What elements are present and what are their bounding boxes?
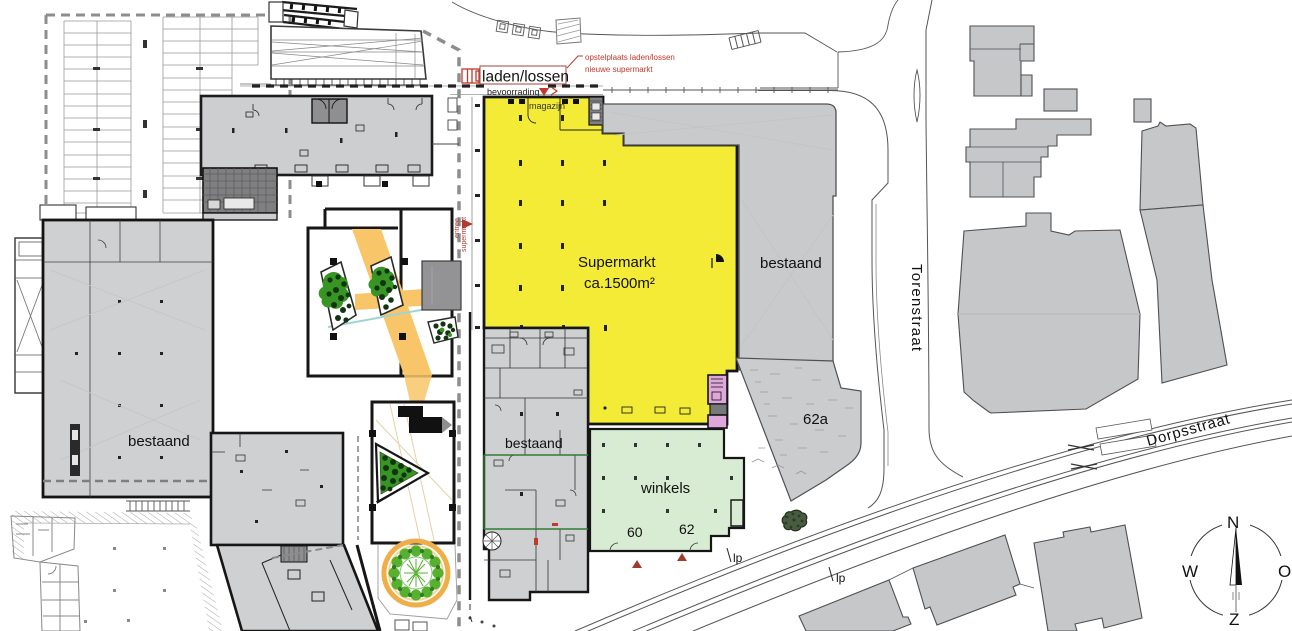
svg-text:winkels: winkels bbox=[640, 480, 690, 497]
svg-text:entree: entree bbox=[454, 218, 461, 238]
svg-text:Torenstraat: Torenstraat bbox=[908, 264, 925, 352]
svg-text:ca.1500m²: ca.1500m² bbox=[584, 275, 655, 292]
svg-text:opstelplaats laden/lossen: opstelplaats laden/lossen bbox=[585, 53, 675, 62]
svg-text:N: N bbox=[1227, 513, 1239, 532]
svg-text:W: W bbox=[1182, 562, 1198, 581]
svg-text:Supermarkt: Supermarkt bbox=[578, 254, 656, 271]
svg-text:bestaand: bestaand bbox=[128, 433, 190, 450]
svg-text:60: 60 bbox=[627, 524, 643, 540]
svg-text:magazijn: magazijn bbox=[529, 101, 565, 111]
svg-text:laden/lossen: laden/lossen bbox=[482, 69, 569, 86]
svg-text:O: O bbox=[1278, 562, 1291, 581]
svg-text:lp: lp bbox=[733, 551, 743, 565]
svg-text:bevoorrading: bevoorrading bbox=[487, 87, 540, 97]
svg-text:bestaand: bestaand bbox=[760, 255, 822, 272]
svg-text:nieuwe supermarkt: nieuwe supermarkt bbox=[585, 65, 653, 74]
svg-text:Z: Z bbox=[1229, 610, 1239, 629]
svg-text:62a: 62a bbox=[803, 411, 829, 428]
svg-text:bestaand: bestaand bbox=[505, 435, 563, 451]
svg-text:62: 62 bbox=[679, 521, 695, 537]
svg-text:lp: lp bbox=[836, 571, 846, 585]
